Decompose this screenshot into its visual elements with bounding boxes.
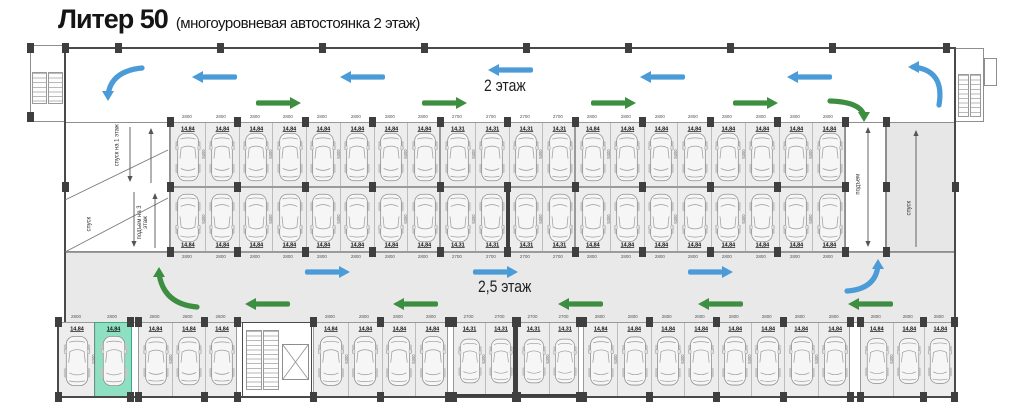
space-width-dim: 2800 bbox=[867, 314, 885, 318]
space-width-dim: 2700 bbox=[524, 314, 541, 318]
parking-space[interactable]: 14,84 bbox=[139, 323, 172, 396]
structural-column bbox=[514, 317, 521, 327]
car-top-view-icon bbox=[817, 193, 843, 243]
car-top-view-icon bbox=[749, 132, 775, 182]
structural-column bbox=[377, 317, 384, 327]
exit-stub bbox=[984, 58, 997, 86]
car-top-view-icon bbox=[344, 193, 370, 243]
space-depth-dim: 5300 bbox=[681, 351, 685, 367]
parking-group: 14,3114,3114,3114,31 bbox=[440, 122, 575, 187]
structural-column bbox=[943, 43, 950, 53]
space-width-dim: 2800 bbox=[616, 255, 635, 259]
space-depth-dim: 5300 bbox=[742, 211, 746, 227]
structural-column bbox=[639, 247, 646, 257]
parking-space[interactable]: 14,84 bbox=[677, 188, 711, 251]
space-depth-dim: 5300 bbox=[614, 351, 618, 367]
parking-space[interactable]: 14,84 bbox=[306, 123, 340, 186]
space-area-label: 14,84 bbox=[211, 326, 233, 331]
parking-space[interactable]: 14,84 bbox=[677, 123, 711, 186]
space-area-label: 14,84 bbox=[785, 126, 807, 131]
parking-space[interactable]: 14,84 bbox=[205, 323, 238, 396]
car-top-view-icon bbox=[783, 193, 809, 243]
space-width-dim: 2700 bbox=[515, 255, 534, 259]
parking-space[interactable]: 14,84 bbox=[610, 188, 644, 251]
stair-flight-icon bbox=[958, 74, 969, 117]
space-area-label: 14,31 bbox=[481, 126, 503, 131]
space-width-dim: 2800 bbox=[245, 114, 264, 118]
parking-space[interactable]: 14,84 bbox=[239, 123, 273, 186]
space-area-label: 14,84 bbox=[589, 326, 612, 331]
structural-column bbox=[707, 182, 714, 192]
parking-group: 14,8414,8414,8414,8414,8414,8414,8414,84 bbox=[583, 322, 850, 397]
car-top-view-icon bbox=[344, 132, 370, 182]
parking-space[interactable]: 14,84 bbox=[751, 323, 784, 396]
space-area-label: 14,31 bbox=[548, 126, 570, 131]
space-area-label: 14,84 bbox=[930, 326, 951, 331]
ramp-down-strip bbox=[886, 122, 955, 252]
structural-column bbox=[437, 117, 444, 127]
space-area-label: 14,84 bbox=[380, 242, 402, 247]
parking-space[interactable]: 14,84 bbox=[812, 188, 846, 251]
space-width-dim: 2800 bbox=[751, 114, 770, 118]
car-top-view-icon bbox=[352, 332, 379, 390]
structural-column bbox=[310, 317, 317, 327]
car-top-view-icon bbox=[143, 332, 169, 390]
space-width-dim: 2800 bbox=[684, 114, 703, 118]
space-depth-dim: 5300 bbox=[674, 146, 678, 162]
space-area-label: 14,31 bbox=[515, 126, 537, 131]
car-top-view-icon bbox=[458, 332, 482, 390]
space-area-label: 14,84 bbox=[245, 242, 267, 247]
structural-column bbox=[572, 117, 579, 127]
parking-space[interactable]: 14,84 bbox=[95, 323, 131, 396]
parking-space[interactable]: 14,84 bbox=[745, 123, 779, 186]
structural-column bbox=[572, 182, 579, 192]
parking-space[interactable]: 14,84 bbox=[340, 123, 374, 186]
space-width-dim: 2800 bbox=[819, 255, 838, 259]
outer-wall-right bbox=[954, 47, 956, 397]
stair-flight-icon bbox=[970, 74, 981, 117]
space-width-dim: 2800 bbox=[650, 255, 669, 259]
parking-space[interactable]: 14,84 bbox=[374, 123, 408, 186]
car-top-view-icon bbox=[479, 193, 505, 243]
parking-space[interactable]: 14,84 bbox=[711, 123, 745, 186]
parking-space[interactable]: 14,31 bbox=[509, 123, 543, 186]
space-width-dim: 2800 bbox=[624, 314, 643, 318]
stair-flight-icon bbox=[263, 330, 279, 390]
parking-space[interactable]: 14,84 bbox=[684, 323, 717, 396]
structural-column bbox=[234, 182, 241, 192]
car-top-view-icon bbox=[722, 332, 748, 390]
plan-subtitle: (многоуровневая автостоянка 2 этаж) bbox=[176, 15, 420, 32]
parking-space[interactable]: 14,84 bbox=[576, 188, 610, 251]
space-depth-dim: 5300 bbox=[890, 351, 894, 367]
structural-column bbox=[135, 392, 142, 402]
space-area-label: 14,84 bbox=[178, 326, 200, 331]
car-top-view-icon bbox=[688, 332, 714, 390]
parking-group: 14,8414,8414,8414,84 bbox=[313, 322, 448, 397]
space-width-dim: 2700 bbox=[491, 314, 508, 318]
ramp-up-3-label: подъем на 3 этаж bbox=[137, 199, 149, 246]
parking-space[interactable]: 14,31 bbox=[509, 188, 543, 251]
parking-space[interactable]: 14,84 bbox=[407, 123, 441, 186]
space-depth-dim: 5300 bbox=[92, 351, 96, 367]
space-depth-dim: 5300 bbox=[482, 351, 486, 367]
space-width-dim: 2800 bbox=[582, 114, 601, 118]
structural-column bbox=[580, 392, 587, 402]
space-area-label: 14,84 bbox=[690, 326, 712, 331]
structural-column bbox=[27, 43, 34, 53]
structural-column bbox=[580, 317, 587, 327]
car-top-view-icon bbox=[378, 193, 404, 243]
structural-column bbox=[842, 182, 849, 192]
parking-space[interactable]: 14,84 bbox=[651, 323, 684, 396]
structural-column bbox=[523, 43, 530, 53]
structural-column bbox=[319, 43, 326, 53]
car-top-view-icon bbox=[479, 132, 505, 182]
parking-space[interactable]: 14,84 bbox=[784, 323, 817, 396]
car-top-view-icon bbox=[445, 193, 471, 243]
space-width-dim: 2800 bbox=[590, 314, 609, 318]
car-top-view-icon bbox=[614, 132, 640, 182]
parking-space[interactable]: 14,84 bbox=[711, 188, 745, 251]
structural-column bbox=[847, 392, 854, 402]
space-width-dim: 2800 bbox=[824, 314, 843, 318]
space-area-label: 14,84 bbox=[866, 326, 887, 331]
space-area-label: 14,84 bbox=[824, 326, 846, 331]
space-area-label: 14,84 bbox=[211, 126, 233, 131]
space-width-dim: 2800 bbox=[211, 114, 230, 118]
parking-space[interactable]: 14,84 bbox=[348, 323, 382, 396]
structural-column bbox=[421, 43, 428, 53]
space-area-label: 14,84 bbox=[312, 242, 334, 247]
parking-space[interactable]: 14,84 bbox=[172, 323, 205, 396]
floor-2-label: 2 этаж bbox=[484, 76, 526, 96]
parking-space[interactable]: 14,84 bbox=[893, 323, 925, 396]
space-width-dim: 2700 bbox=[515, 114, 534, 118]
structural-column bbox=[883, 247, 890, 257]
parking-space[interactable]: 14,84 bbox=[924, 323, 956, 396]
structural-column bbox=[27, 112, 34, 122]
space-area-label: 14,84 bbox=[413, 242, 435, 247]
structural-column bbox=[310, 392, 317, 402]
car-top-view-icon bbox=[580, 132, 606, 182]
car-top-view-icon bbox=[412, 132, 438, 182]
parking-space[interactable]: 14,31 bbox=[441, 188, 475, 251]
space-depth-dim: 5300 bbox=[337, 146, 341, 162]
parking-space[interactable]: 14,31 bbox=[542, 123, 576, 186]
space-area-label: 14,84 bbox=[413, 126, 435, 131]
parking-space[interactable]: 14,84 bbox=[718, 323, 751, 396]
space-width-dim: 2800 bbox=[346, 255, 365, 259]
car-top-view-icon bbox=[648, 193, 674, 243]
parking-space[interactable]: 14,31 bbox=[475, 188, 509, 251]
space-width-dim: 2800 bbox=[354, 314, 373, 318]
space-depth-dim: 5300 bbox=[539, 146, 543, 162]
space-depth-dim: 5300 bbox=[169, 351, 173, 367]
space-area-label: 14,84 bbox=[757, 326, 779, 331]
structural-column bbox=[234, 117, 241, 127]
structural-column bbox=[302, 117, 309, 127]
car-top-view-icon bbox=[580, 193, 606, 243]
structural-column bbox=[951, 317, 958, 327]
space-width-dim: 2800 bbox=[102, 314, 122, 318]
space-area-label: 14,84 bbox=[616, 126, 638, 131]
space-area-label: 14,84 bbox=[717, 126, 739, 131]
parking-space[interactable]: 14,84 bbox=[818, 323, 851, 396]
structural-column bbox=[234, 247, 241, 257]
space-area-label: 14,84 bbox=[717, 242, 739, 247]
parking-space[interactable]: 14,84 bbox=[407, 188, 441, 251]
car-top-view-icon bbox=[489, 332, 513, 390]
space-area-label: 14,31 bbox=[515, 242, 537, 247]
parking-space[interactable]: 14,84 bbox=[644, 188, 678, 251]
firewall-mid bbox=[506, 187, 511, 252]
space-area-label: 14,84 bbox=[650, 126, 672, 131]
parking-space[interactable]: 14,84 bbox=[745, 188, 779, 251]
car-top-view-icon bbox=[209, 332, 235, 390]
space-depth-dim: 5300 bbox=[815, 351, 819, 367]
space-area-label: 14,84 bbox=[278, 126, 300, 131]
car-top-view-icon bbox=[587, 332, 613, 390]
parking-space[interactable]: 14,31 bbox=[441, 123, 475, 186]
space-depth-dim: 5300 bbox=[404, 211, 408, 227]
space-width-dim: 2800 bbox=[757, 314, 776, 318]
structural-column bbox=[302, 182, 309, 192]
space-width-dim: 2800 bbox=[717, 114, 736, 118]
parking-space[interactable]: 14,84 bbox=[239, 188, 273, 251]
car-top-view-icon bbox=[175, 132, 201, 182]
structural-column bbox=[951, 392, 958, 402]
space-depth-dim: 5300 bbox=[546, 351, 550, 367]
parking-space[interactable]: 14,84 bbox=[812, 123, 846, 186]
car-top-view-icon bbox=[749, 193, 775, 243]
parking-space[interactable]: 14,84 bbox=[171, 188, 205, 251]
space-width-dim: 2700 bbox=[481, 255, 500, 259]
parking-space[interactable]: 14,84 bbox=[861, 323, 893, 396]
structural-column bbox=[639, 182, 646, 192]
parking-space[interactable]: 14,84 bbox=[576, 123, 610, 186]
space-depth-dim: 5300 bbox=[269, 211, 273, 227]
space-depth-dim: 5300 bbox=[472, 211, 476, 227]
structural-column bbox=[167, 117, 174, 127]
parking-space[interactable]: 14,31 bbox=[518, 323, 549, 396]
ramp-down-1-label: спуск на 1 этаж bbox=[114, 123, 120, 167]
car-top-view-icon bbox=[755, 332, 781, 390]
structural-column bbox=[572, 247, 579, 257]
space-width-dim: 2800 bbox=[414, 114, 433, 118]
car-top-view-icon bbox=[553, 332, 577, 390]
space-area-label: 14,84 bbox=[102, 326, 126, 331]
parking-space[interactable]: 14,84 bbox=[610, 123, 644, 186]
space-width-dim: 2800 bbox=[691, 314, 710, 318]
structural-column bbox=[883, 182, 890, 192]
structural-column bbox=[639, 117, 646, 127]
structural-column bbox=[646, 392, 653, 402]
space-width-dim: 2800 bbox=[388, 314, 407, 318]
space-width-dim: 2800 bbox=[178, 314, 196, 318]
space-area-label: 14,84 bbox=[245, 126, 267, 131]
space-area-label: 14,84 bbox=[785, 242, 807, 247]
car-top-view-icon bbox=[783, 132, 809, 182]
structural-column bbox=[920, 317, 927, 327]
parking-space[interactable]: 14,84 bbox=[340, 188, 374, 251]
parking-space[interactable]: 14,84 bbox=[374, 188, 408, 251]
space-width-dim: 2800 bbox=[791, 314, 810, 318]
parking-space[interactable]: 14,84 bbox=[415, 323, 449, 396]
structural-column bbox=[857, 392, 864, 402]
parking-space[interactable]: 14,31 bbox=[485, 323, 516, 396]
space-depth-dim: 5300 bbox=[412, 351, 416, 367]
space-width-dim: 2800 bbox=[650, 114, 669, 118]
structural-column bbox=[504, 247, 511, 257]
parking-space[interactable]: 14,84 bbox=[272, 123, 306, 186]
parking-space[interactable]: 14,84 bbox=[314, 323, 348, 396]
structural-column bbox=[302, 247, 309, 257]
space-area-label: 14,84 bbox=[683, 126, 705, 131]
car-top-view-icon bbox=[412, 193, 438, 243]
parking-group: 14,8414,8414,8414,8414,8414,8414,8414,84 bbox=[575, 187, 845, 252]
structural-column bbox=[55, 392, 62, 402]
space-width-dim: 2800 bbox=[582, 255, 601, 259]
plan-title-block: Литер 50 (многоуровневая автостоянка 2 э… bbox=[58, 4, 420, 35]
space-width-dim: 2800 bbox=[724, 314, 743, 318]
parking-space[interactable]: 14,84 bbox=[584, 323, 617, 396]
space-depth-dim: 5300 bbox=[539, 211, 543, 227]
space-area-label: 14,31 bbox=[446, 126, 469, 131]
ramp-down-left-label: спуск bbox=[86, 209, 92, 239]
car-top-view-icon bbox=[621, 332, 647, 390]
parking-space[interactable]: 14,84 bbox=[779, 123, 813, 186]
space-area-label: 14,84 bbox=[791, 326, 813, 331]
space-width-dim: 2800 bbox=[312, 114, 331, 118]
structural-column bbox=[847, 317, 854, 327]
parking-space[interactable]: 14,31 bbox=[549, 323, 580, 396]
car-top-view-icon bbox=[176, 332, 202, 390]
outer-wall-top bbox=[65, 47, 955, 49]
space-width-dim: 2800 bbox=[279, 114, 298, 118]
car-top-view-icon bbox=[897, 332, 922, 390]
space-depth-dim: 5300 bbox=[742, 146, 746, 162]
structural-column bbox=[774, 117, 781, 127]
ramp-up-strip bbox=[845, 122, 886, 252]
space-area-label: 14,84 bbox=[388, 326, 410, 331]
car-top-view-icon bbox=[386, 332, 413, 390]
structural-column bbox=[774, 247, 781, 257]
structural-column bbox=[842, 117, 849, 127]
plan-title: Литер 50 bbox=[58, 4, 168, 35]
space-width-dim: 2800 bbox=[177, 255, 196, 259]
parking-space[interactable]: 14,84 bbox=[382, 323, 416, 396]
space-area-label: 14,84 bbox=[312, 126, 334, 131]
space-area-label: 14,31 bbox=[523, 326, 544, 331]
car-top-view-icon bbox=[547, 132, 573, 182]
parking-space[interactable]: 14,84 bbox=[171, 123, 205, 186]
structural-column bbox=[780, 317, 787, 327]
structural-column bbox=[625, 43, 632, 53]
structural-column bbox=[713, 392, 720, 402]
structural-column bbox=[62, 182, 69, 192]
parking-space[interactable]: 14,84 bbox=[617, 323, 650, 396]
structural-column bbox=[842, 247, 849, 257]
parking-group: 14,8414,8414,8414,8414,8414,8414,8414,84 bbox=[170, 187, 440, 252]
space-width-dim: 2700 bbox=[460, 314, 477, 318]
space-area-label: 14,31 bbox=[555, 326, 575, 331]
parking-floor-plan: Литер 50 (многоуровневая автостоянка 2 э… bbox=[0, 0, 1024, 410]
parking-space[interactable]: 14,84 bbox=[205, 188, 239, 251]
structural-column bbox=[437, 182, 444, 192]
parking-space[interactable]: 14,84 bbox=[644, 123, 678, 186]
space-width-dim: 2800 bbox=[684, 255, 703, 259]
space-width-dim: 2700 bbox=[549, 114, 568, 118]
car-top-view-icon bbox=[243, 132, 269, 182]
parking-space[interactable]: 14,84 bbox=[205, 123, 239, 186]
space-width-dim: 2800 bbox=[177, 114, 196, 118]
parking-space[interactable]: 14,31 bbox=[542, 188, 576, 251]
parking-group: 14,8414,8414,8414,8414,8414,8414,8414,84 bbox=[170, 122, 440, 187]
structural-column bbox=[369, 117, 376, 127]
structural-column bbox=[127, 392, 134, 402]
structural-column bbox=[167, 182, 174, 192]
parking-space[interactable]: 14,84 bbox=[59, 323, 95, 396]
space-area-label: 14,84 bbox=[751, 242, 773, 247]
car-top-view-icon bbox=[310, 132, 336, 182]
parking-space[interactable]: 14,84 bbox=[306, 188, 340, 251]
space-area-label: 14,84 bbox=[898, 326, 919, 331]
car-top-view-icon bbox=[817, 132, 843, 182]
parking-space[interactable]: 14,84 bbox=[779, 188, 813, 251]
structural-column bbox=[780, 392, 787, 402]
structural-column bbox=[883, 117, 890, 127]
space-area-label: 14,84 bbox=[581, 126, 604, 131]
space-width-dim: 2800 bbox=[380, 114, 399, 118]
space-area-label: 14,84 bbox=[657, 326, 679, 331]
structural-column bbox=[135, 317, 142, 327]
space-width-dim: 2800 bbox=[211, 255, 230, 259]
car-top-view-icon bbox=[682, 193, 708, 243]
car-top-view-icon bbox=[614, 193, 640, 243]
car-top-view-icon bbox=[715, 193, 741, 243]
space-width-dim: 2800 bbox=[279, 255, 298, 259]
structural-column bbox=[234, 317, 241, 327]
space-depth-dim: 5300 bbox=[607, 146, 611, 162]
car-top-view-icon bbox=[64, 332, 91, 390]
space-area-label: 14,84 bbox=[421, 326, 443, 331]
parking-space[interactable]: 14,84 bbox=[272, 188, 306, 251]
structural-column bbox=[727, 43, 734, 53]
structural-column bbox=[504, 182, 511, 192]
space-area-label: 14,84 bbox=[319, 326, 342, 331]
space-depth-dim: 5300 bbox=[674, 211, 678, 227]
structural-column bbox=[450, 317, 457, 327]
car-top-view-icon bbox=[715, 132, 741, 182]
space-width-dim: 2800 bbox=[785, 114, 804, 118]
space-width-dim: 2700 bbox=[481, 114, 500, 118]
space-area-label: 14,84 bbox=[650, 242, 672, 247]
space-depth-dim: 5300 bbox=[404, 146, 408, 162]
structural-column bbox=[514, 392, 521, 402]
space-area-label: 14,84 bbox=[176, 242, 199, 247]
car-top-view-icon bbox=[378, 132, 404, 182]
structural-column bbox=[217, 43, 224, 53]
parking-space[interactable]: 14,31 bbox=[454, 323, 485, 396]
car-top-view-icon bbox=[655, 332, 681, 390]
ramp-up-label: подъем bbox=[855, 168, 861, 201]
parking-space[interactable]: 14,31 bbox=[475, 123, 509, 186]
space-width-dim: 2800 bbox=[751, 255, 770, 259]
space-area-label: 14,84 bbox=[818, 242, 840, 247]
space-area-label: 14,31 bbox=[548, 242, 570, 247]
